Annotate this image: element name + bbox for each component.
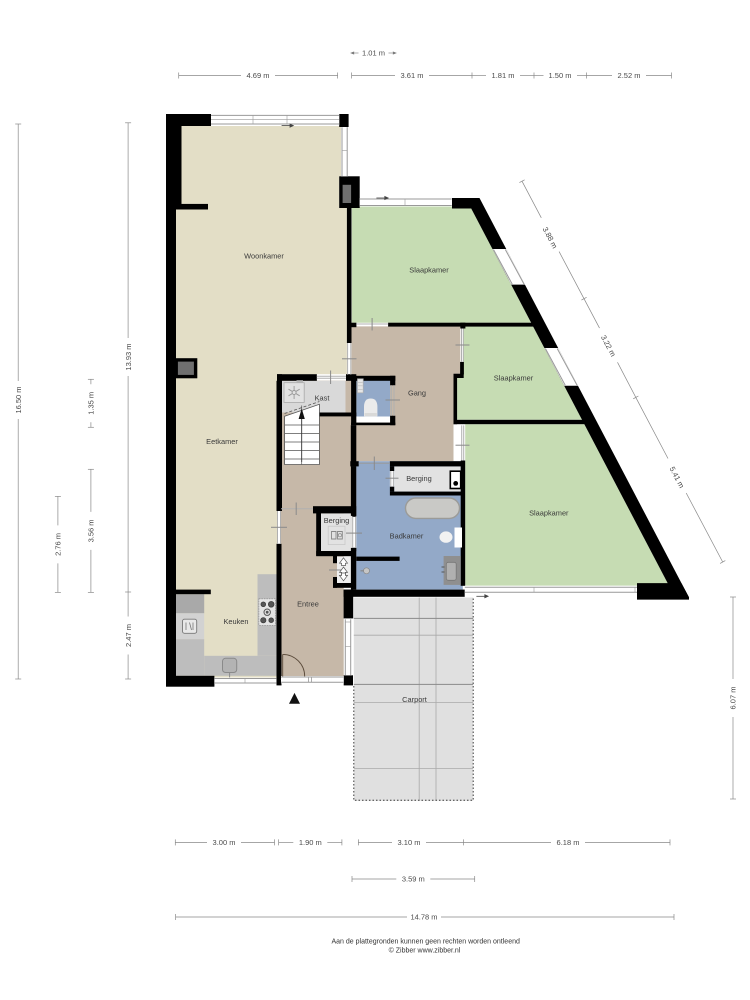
svg-text:Badkamer: Badkamer <box>390 532 424 541</box>
svg-text:2.47 m: 2.47 m <box>124 624 133 647</box>
svg-text:1.81 m: 1.81 m <box>492 71 515 80</box>
svg-text:1.35 m: 1.35 m <box>87 392 96 415</box>
svg-text:4.69 m: 4.69 m <box>247 71 270 80</box>
svg-text:1.01 m: 1.01 m <box>362 49 385 58</box>
svg-text:Kast: Kast <box>315 393 330 402</box>
svg-text:Slaapkamer: Slaapkamer <box>409 266 449 275</box>
svg-text:14.78 m: 14.78 m <box>410 913 437 922</box>
svg-text:3.10 m: 3.10 m <box>398 838 421 847</box>
svg-text:16.50 m: 16.50 m <box>14 386 23 413</box>
svg-text:3.00 m: 3.00 m <box>213 838 236 847</box>
svg-text:3.61 m: 3.61 m <box>401 71 424 80</box>
svg-text:Slaapkamer: Slaapkamer <box>529 508 569 517</box>
svg-text:1.50 m: 1.50 m <box>549 71 572 80</box>
svg-text:Woonkamer: Woonkamer <box>244 252 284 261</box>
svg-text:Eetkamer: Eetkamer <box>206 437 238 446</box>
svg-text:3.59 m: 3.59 m <box>402 875 425 884</box>
svg-text:Berging: Berging <box>324 516 349 525</box>
svg-text:Berging: Berging <box>406 474 431 483</box>
svg-text:Entree: Entree <box>297 599 319 608</box>
svg-text:Carport: Carport <box>402 695 427 704</box>
svg-text:3.56 m: 3.56 m <box>87 519 96 542</box>
svg-text:Gang: Gang <box>408 389 426 398</box>
svg-text:© Zibber www.zibber.nl: © Zibber www.zibber.nl <box>389 947 461 955</box>
svg-text:6.07 m: 6.07 m <box>729 687 738 710</box>
svg-text:2.76 m: 2.76 m <box>54 533 63 556</box>
svg-text:Aan de plattegronden kunnen ge: Aan de plattegronden kunnen geen rechten… <box>332 939 520 946</box>
svg-text:Keuken: Keuken <box>223 617 248 626</box>
svg-text:13.93 m: 13.93 m <box>124 343 133 370</box>
svg-text:2.52 m: 2.52 m <box>618 71 641 80</box>
svg-text:Slaapkamer: Slaapkamer <box>494 374 534 383</box>
svg-text:1.90 m: 1.90 m <box>299 838 322 847</box>
svg-text:6.18 m: 6.18 m <box>557 838 580 847</box>
